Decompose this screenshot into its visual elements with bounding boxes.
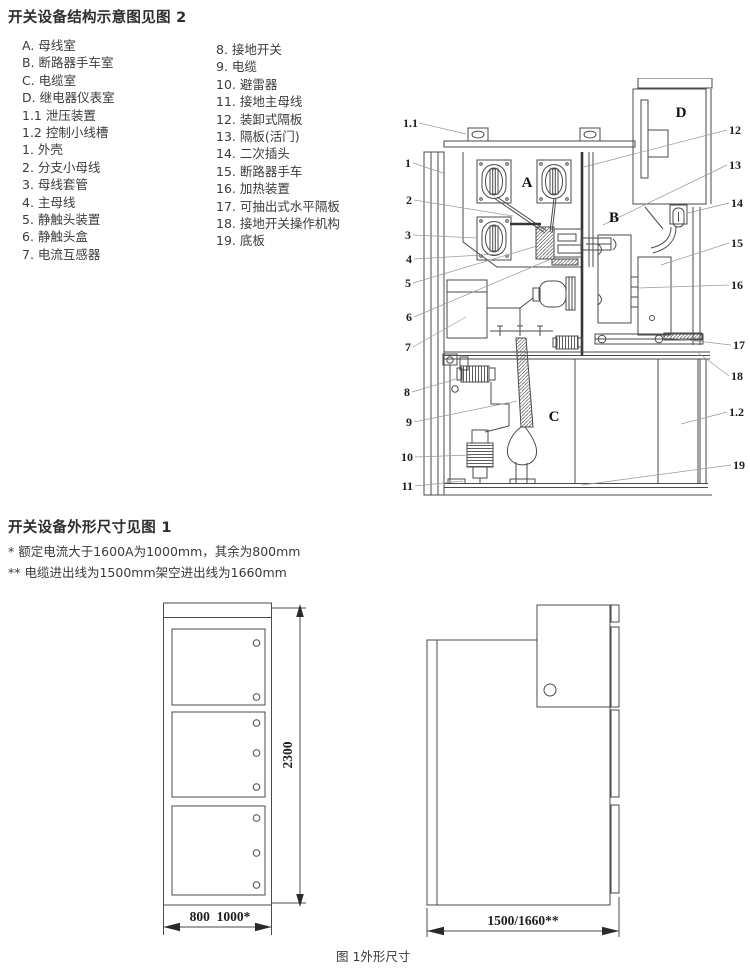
cabinet-shell — [424, 128, 712, 495]
manual-page: 开关设备结构示意图见图 2 A. 母线室 B. 断路器手车室 C. 电缆室 D.… — [0, 0, 750, 970]
door-knob — [253, 694, 260, 701]
legend-item: 1.2 控制小线槽 — [22, 124, 115, 141]
callout-6: 6 — [406, 310, 412, 324]
callout-16: 16 — [731, 278, 743, 292]
legend-item: 17. 可抽出式水平隔板 — [216, 198, 340, 215]
legend-item: 5. 静触头装置 — [22, 211, 115, 228]
compartment-label-b: B — [609, 210, 619, 226]
door-edge — [611, 710, 619, 797]
legend-item: 11. 接地主母线 — [216, 93, 340, 110]
legend-item: 1. 外壳 — [22, 141, 115, 158]
door-knob — [253, 850, 260, 857]
door-knob — [253, 750, 260, 757]
callout-14: 14 — [731, 196, 743, 210]
callout-17: 17 — [733, 338, 745, 352]
door-knob — [253, 784, 260, 791]
callout-15: 15 — [731, 236, 743, 250]
front-view — [164, 603, 272, 905]
legend-item: 4. 主母线 — [22, 194, 115, 211]
legend-item: 18. 接地开关操作机构 — [216, 215, 340, 232]
legend-item: 1.1 泄压装置 — [22, 107, 115, 124]
figure1-dimension-drawing: 2300 800 1000* — [150, 595, 630, 945]
busbar-bushing — [477, 217, 511, 260]
callout-10: 10 — [401, 450, 413, 464]
door-knob — [253, 640, 260, 647]
door-knob — [253, 720, 260, 727]
legend-item: 15. 断路器手车 — [216, 163, 340, 180]
legend-item: C. 电缆室 — [22, 72, 115, 89]
callout-4: 4 — [406, 252, 412, 266]
legend-item: 12. 装卸式隔板 — [216, 111, 340, 128]
figure2-title: 开关设备结构示意图见图 2 — [8, 6, 187, 27]
compartment-label-c: C — [549, 409, 560, 425]
door-edge — [611, 627, 619, 707]
callout-1.2: 1.2 — [729, 405, 744, 419]
callout-5: 5 — [405, 276, 411, 290]
callout-1: 1 — [405, 156, 411, 170]
callout-13: 13 — [729, 158, 741, 172]
breaker-handcart — [595, 235, 703, 344]
relay-compartment-d — [633, 78, 712, 229]
callout-12: 12 — [729, 123, 741, 137]
dim-width-label: 800 1000* — [190, 909, 251, 924]
door-knob — [253, 815, 260, 822]
width-dimension: 800 1000* — [164, 905, 272, 935]
figure1-caption: 图 1外形尺寸 — [336, 946, 410, 965]
callout-7: 7 — [405, 340, 411, 354]
static-contact-assembly — [536, 227, 616, 265]
legend-item: 8. 接地开关 — [216, 41, 340, 58]
callout-1.1: 1.1 — [403, 116, 418, 130]
door-panel — [172, 629, 265, 705]
heater-element — [556, 336, 578, 349]
side-view — [427, 605, 619, 905]
breaker-pole — [487, 277, 582, 349]
earthing-switch — [452, 366, 495, 392]
footnote-1: * 额定电流大于1600A为1000mm，其余为800mm — [8, 541, 300, 560]
legend-item: A. 母线室 — [22, 37, 115, 54]
callout-3: 3 — [405, 228, 411, 242]
depth-dimension: 1500/1660** — [427, 897, 619, 937]
surge-arrester — [467, 430, 493, 483]
legend-item: 3. 母线套管 — [22, 176, 115, 193]
lifting-lug — [580, 128, 600, 141]
power-cable — [507, 338, 536, 484]
figure2-legend-column-2: 8. 接地开关 9. 电缆 10. 避雷器 11. 接地主母线 12. 装卸式隔… — [216, 41, 340, 250]
dim-height-label: 2300 — [280, 741, 295, 768]
legend-item: 6. 静触头盒 — [22, 228, 115, 245]
legend-item: B. 断路器手车室 — [22, 54, 115, 71]
legend-item: 2. 分支小母线 — [22, 159, 115, 176]
busbar-bushing — [477, 160, 511, 203]
callout-11: 11 — [402, 479, 413, 493]
callout-9: 9 — [406, 415, 412, 429]
busbar-bushing — [537, 160, 571, 203]
figure2-legend-column-1: A. 母线室 B. 断路器手车室 C. 电缆室 D. 继电器仪表室 1.1 泄压… — [22, 37, 115, 263]
legend-item: 10. 避雷器 — [216, 76, 340, 93]
legend-item: 13. 隔板(活门) — [216, 128, 340, 145]
legend-item: 19. 底板 — [216, 232, 340, 249]
door-edge — [611, 605, 619, 622]
horizontal-partition — [664, 333, 702, 340]
lifting-lug — [468, 128, 488, 141]
legend-item: 9. 电缆 — [216, 58, 340, 75]
height-dimension: 2300 — [272, 604, 307, 907]
dim-depth-label: 1500/1660** — [487, 913, 559, 928]
callout-2: 2 — [406, 193, 412, 207]
door-panel — [172, 712, 265, 797]
callout-8: 8 — [404, 385, 410, 399]
cable-compartment-c — [450, 338, 698, 484]
legend-item: 16. 加热装置 — [216, 180, 340, 197]
relay-box — [537, 605, 610, 707]
roof-plate — [444, 141, 635, 147]
legend-item: 14. 二次插头 — [216, 145, 340, 162]
callout-19: 19 — [733, 458, 745, 472]
door-knob — [253, 882, 260, 889]
legend-item: D. 继电器仪表室 — [22, 89, 115, 106]
secondary-plug-tube — [651, 227, 676, 253]
door-panel — [172, 806, 265, 895]
compartment-label-d: D — [676, 105, 687, 121]
figure2-structure-diagram: 1.1 1 2 3 4 5 6 7 8 9 10 11 12 13 14 15 … — [395, 78, 750, 502]
compartment-label-a: A — [522, 175, 533, 191]
door-edge — [611, 805, 619, 893]
legend-item: 7. 电流互感器 — [22, 246, 115, 263]
figure1-title: 开关设备外形尺寸见图 1 — [8, 516, 172, 537]
footnote-2: ** 电缆进出线为1500mm架空进出线为1660mm — [8, 562, 287, 581]
callout-18: 18 — [731, 369, 743, 383]
